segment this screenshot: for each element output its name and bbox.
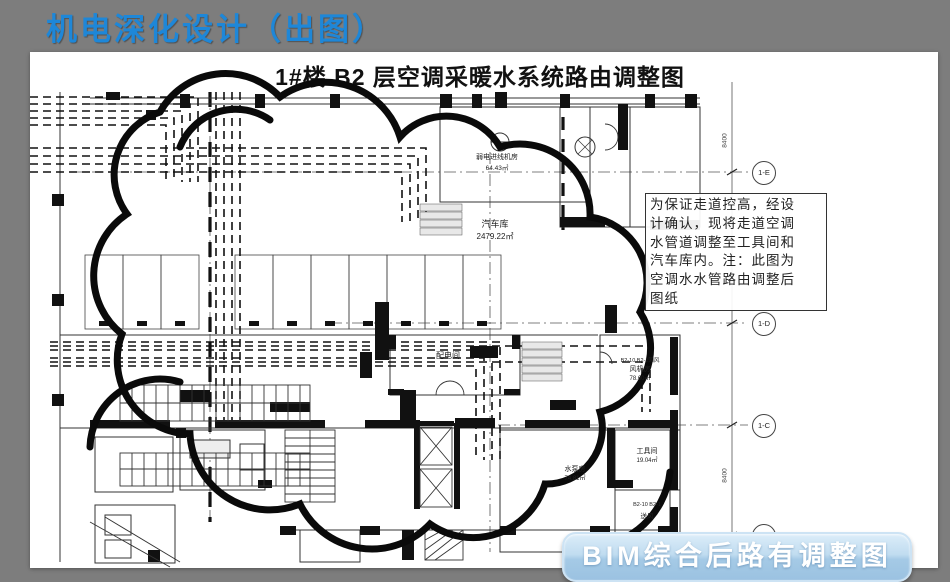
garage-name-label: 汽车库 (460, 217, 530, 230)
room-area-pump: 74.81㎡ (530, 473, 620, 482)
room-area-tool: 19.04㎡ (616, 455, 678, 464)
parking-stalls (85, 255, 501, 329)
room-area-weak-current: 64.43㎡ (442, 162, 552, 172)
room-area-fan: 78.60㎡ (602, 373, 678, 382)
grid-bubble-1d: 1-D (752, 312, 776, 336)
bim-caption-button[interactable]: BIM综合后路有调整图 (562, 532, 912, 582)
annotation-note: 为保证走道控高，经设 计确认，现将走道空调 水管道调整至工具间和 汽车库内。注：… (645, 193, 827, 311)
slide-title: 机电深化设计（出图） (46, 4, 386, 49)
room-note-supply: B2-10 B2-1 (616, 502, 678, 508)
room-label-supply: 送风 (616, 510, 678, 520)
grid-bubble-1c: 1-C (752, 414, 776, 438)
room-note-fan: B2-10 B2-1回风 (602, 356, 678, 364)
dimension-label-top: 8400 (722, 133, 729, 147)
room-label-distribution: 配电间 (408, 350, 488, 361)
room-label-weak-current: 弱电进线机房 (442, 152, 552, 162)
garage-area-label: 2479.22㎡ (455, 231, 535, 242)
grid-bubble-1e: 1-E (752, 161, 776, 185)
dimension-label-bottom: 8400 (722, 468, 729, 482)
drawing-panel: 1#楼 B2 层空调采暖水系统路由调整图 (30, 52, 938, 568)
